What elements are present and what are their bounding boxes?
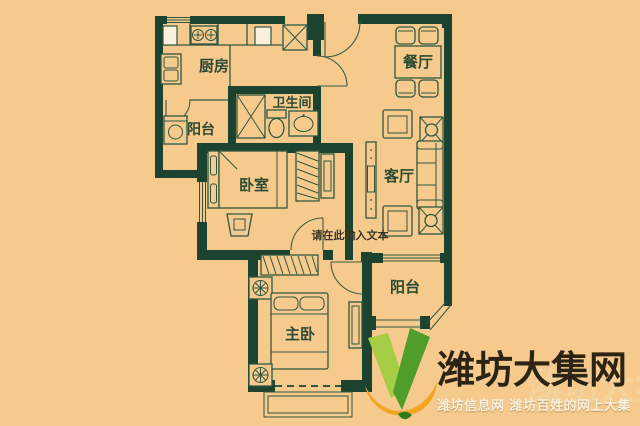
- room-label-balcony-right: 阳台: [390, 278, 420, 296]
- nightstand-lamp-icon: [249, 277, 272, 299]
- bathroom-sink-icon: [289, 111, 318, 136]
- kitchen-cabinet-icon: [163, 26, 177, 45]
- kitchen-sink-icon: [161, 54, 181, 84]
- entry-shaft-icon: [283, 25, 307, 50]
- toilet-icon: [267, 110, 286, 138]
- sofa-icon: [417, 141, 443, 209]
- room-label-bathroom: 卫生间: [272, 95, 311, 111]
- room-label-master-bedroom: 主卧: [285, 325, 315, 343]
- dining-chair-icon: [419, 27, 438, 44]
- left-balcony-fixtures: [164, 116, 187, 144]
- side-table-icon: [419, 207, 443, 234]
- dining-chair-icon: [419, 80, 438, 97]
- room-label-kitchen: 厨房: [199, 57, 229, 75]
- armchair-icon: [383, 110, 412, 138]
- fridge-icon: [255, 27, 271, 45]
- desk-icon: [321, 154, 334, 198]
- closet-rail-icon: [261, 255, 318, 275]
- master-bedroom-furniture: [249, 255, 328, 386]
- side-table-icon: [420, 117, 443, 143]
- room-label-bedroom: 卧室: [239, 176, 269, 194]
- placeholder-text: 请在此输入文本: [312, 228, 389, 242]
- floor-plan-image: 厨房 餐厅 阳台 卫生间 卧室 客厅 主卧 阳台 请在此输入文本 潍坊大集网 潍…: [0, 0, 640, 426]
- tv-cabinet-icon: [366, 142, 376, 218]
- dining-chair-icon: [396, 80, 415, 97]
- shaft-icon: [237, 95, 265, 138]
- nightstand-lamp-icon: [249, 364, 272, 386]
- stove-icon: [191, 26, 217, 44]
- dining-chair-icon: [396, 27, 415, 44]
- floor-plan: 厨房 餐厅 阳台 卫生间 卧室 客厅 主卧 阳台 请在此输入文本: [0, 0, 640, 426]
- washing-machine-icon: [164, 116, 187, 144]
- room-label-balcony-left: 阳台: [187, 121, 215, 138]
- tv-stand-icon: [227, 214, 252, 236]
- room-label-living: 客厅: [383, 167, 414, 185]
- bedroom-furniture: [208, 151, 334, 236]
- room-label-dining: 餐厅: [403, 53, 433, 71]
- wardrobe-icon: [296, 151, 319, 201]
